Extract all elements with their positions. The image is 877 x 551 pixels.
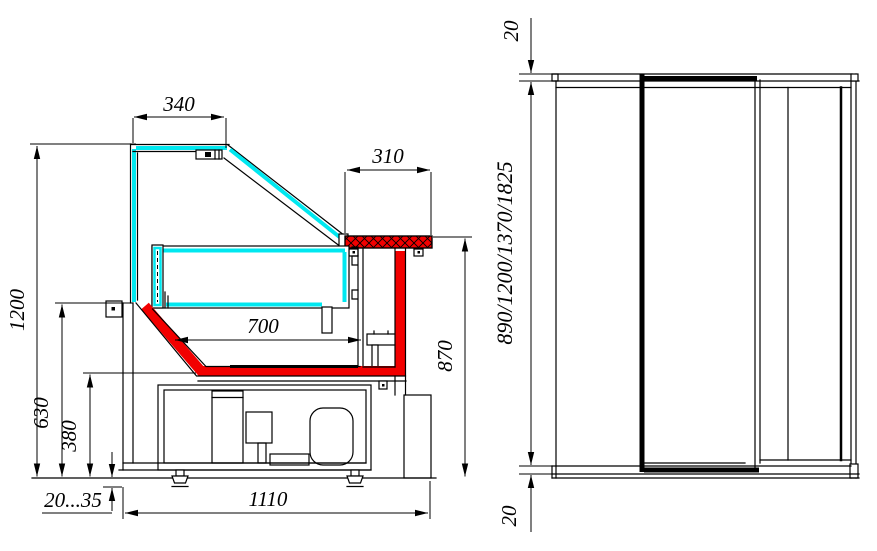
deck-support [322,307,332,333]
technical-drawing-canvas: 340 310 1200 630 380 700 870 20...35 111… [0,0,877,551]
dim-label-worktop-height: 870 [433,340,457,372]
extension-lines [519,74,553,474]
dim-label-canopy-width: 340 [162,92,195,116]
rear-door-panel [760,74,858,478]
dim-label-foot-range: 20...35 [44,488,102,512]
shelf-standards [352,247,398,372]
evaporator-unit [212,391,243,463]
dim-label-top-thickness: 20 [499,20,523,42]
shelf-bracket [367,334,398,345]
electric-box [246,412,272,443]
dim-label-basin-bottom-height: 380 [57,420,81,453]
sliding-door-frame [642,74,760,472]
canopy [131,145,229,160]
front-elevation-view: 20 890/1200/1370/1825 20 [492,18,859,532]
machine-compartment [158,385,371,470]
dim-label-worktop-depth: 310 [371,144,404,168]
top-right-cap [851,74,858,81]
rear-lower-panel [404,395,431,478]
dim-label-bottom-thickness: 20 [497,505,521,527]
dim-label-overall-depth: 1110 [249,487,288,511]
dim-label-basin-front-height: 630 [29,397,53,429]
side-section-view: 340 310 1200 630 380 700 870 20...35 111… [5,92,472,519]
dim-label-deck-width: 700 [247,314,279,338]
dim-label-model-lengths: 890/1200/1370/1825 [492,161,517,344]
display-case-drawing: 340 310 1200 630 380 700 870 20...35 111… [0,0,877,551]
slanted-glass [224,145,349,248]
adjustable-foot-right [347,470,363,487]
top-left-cap [552,74,558,81]
adjustable-foot-left [172,470,188,487]
front-glass [131,144,138,303]
front-panel [106,301,133,470]
compressor [310,408,353,465]
cabinet-outline [552,74,859,478]
dim-label-overall-height: 1200 [5,289,29,332]
